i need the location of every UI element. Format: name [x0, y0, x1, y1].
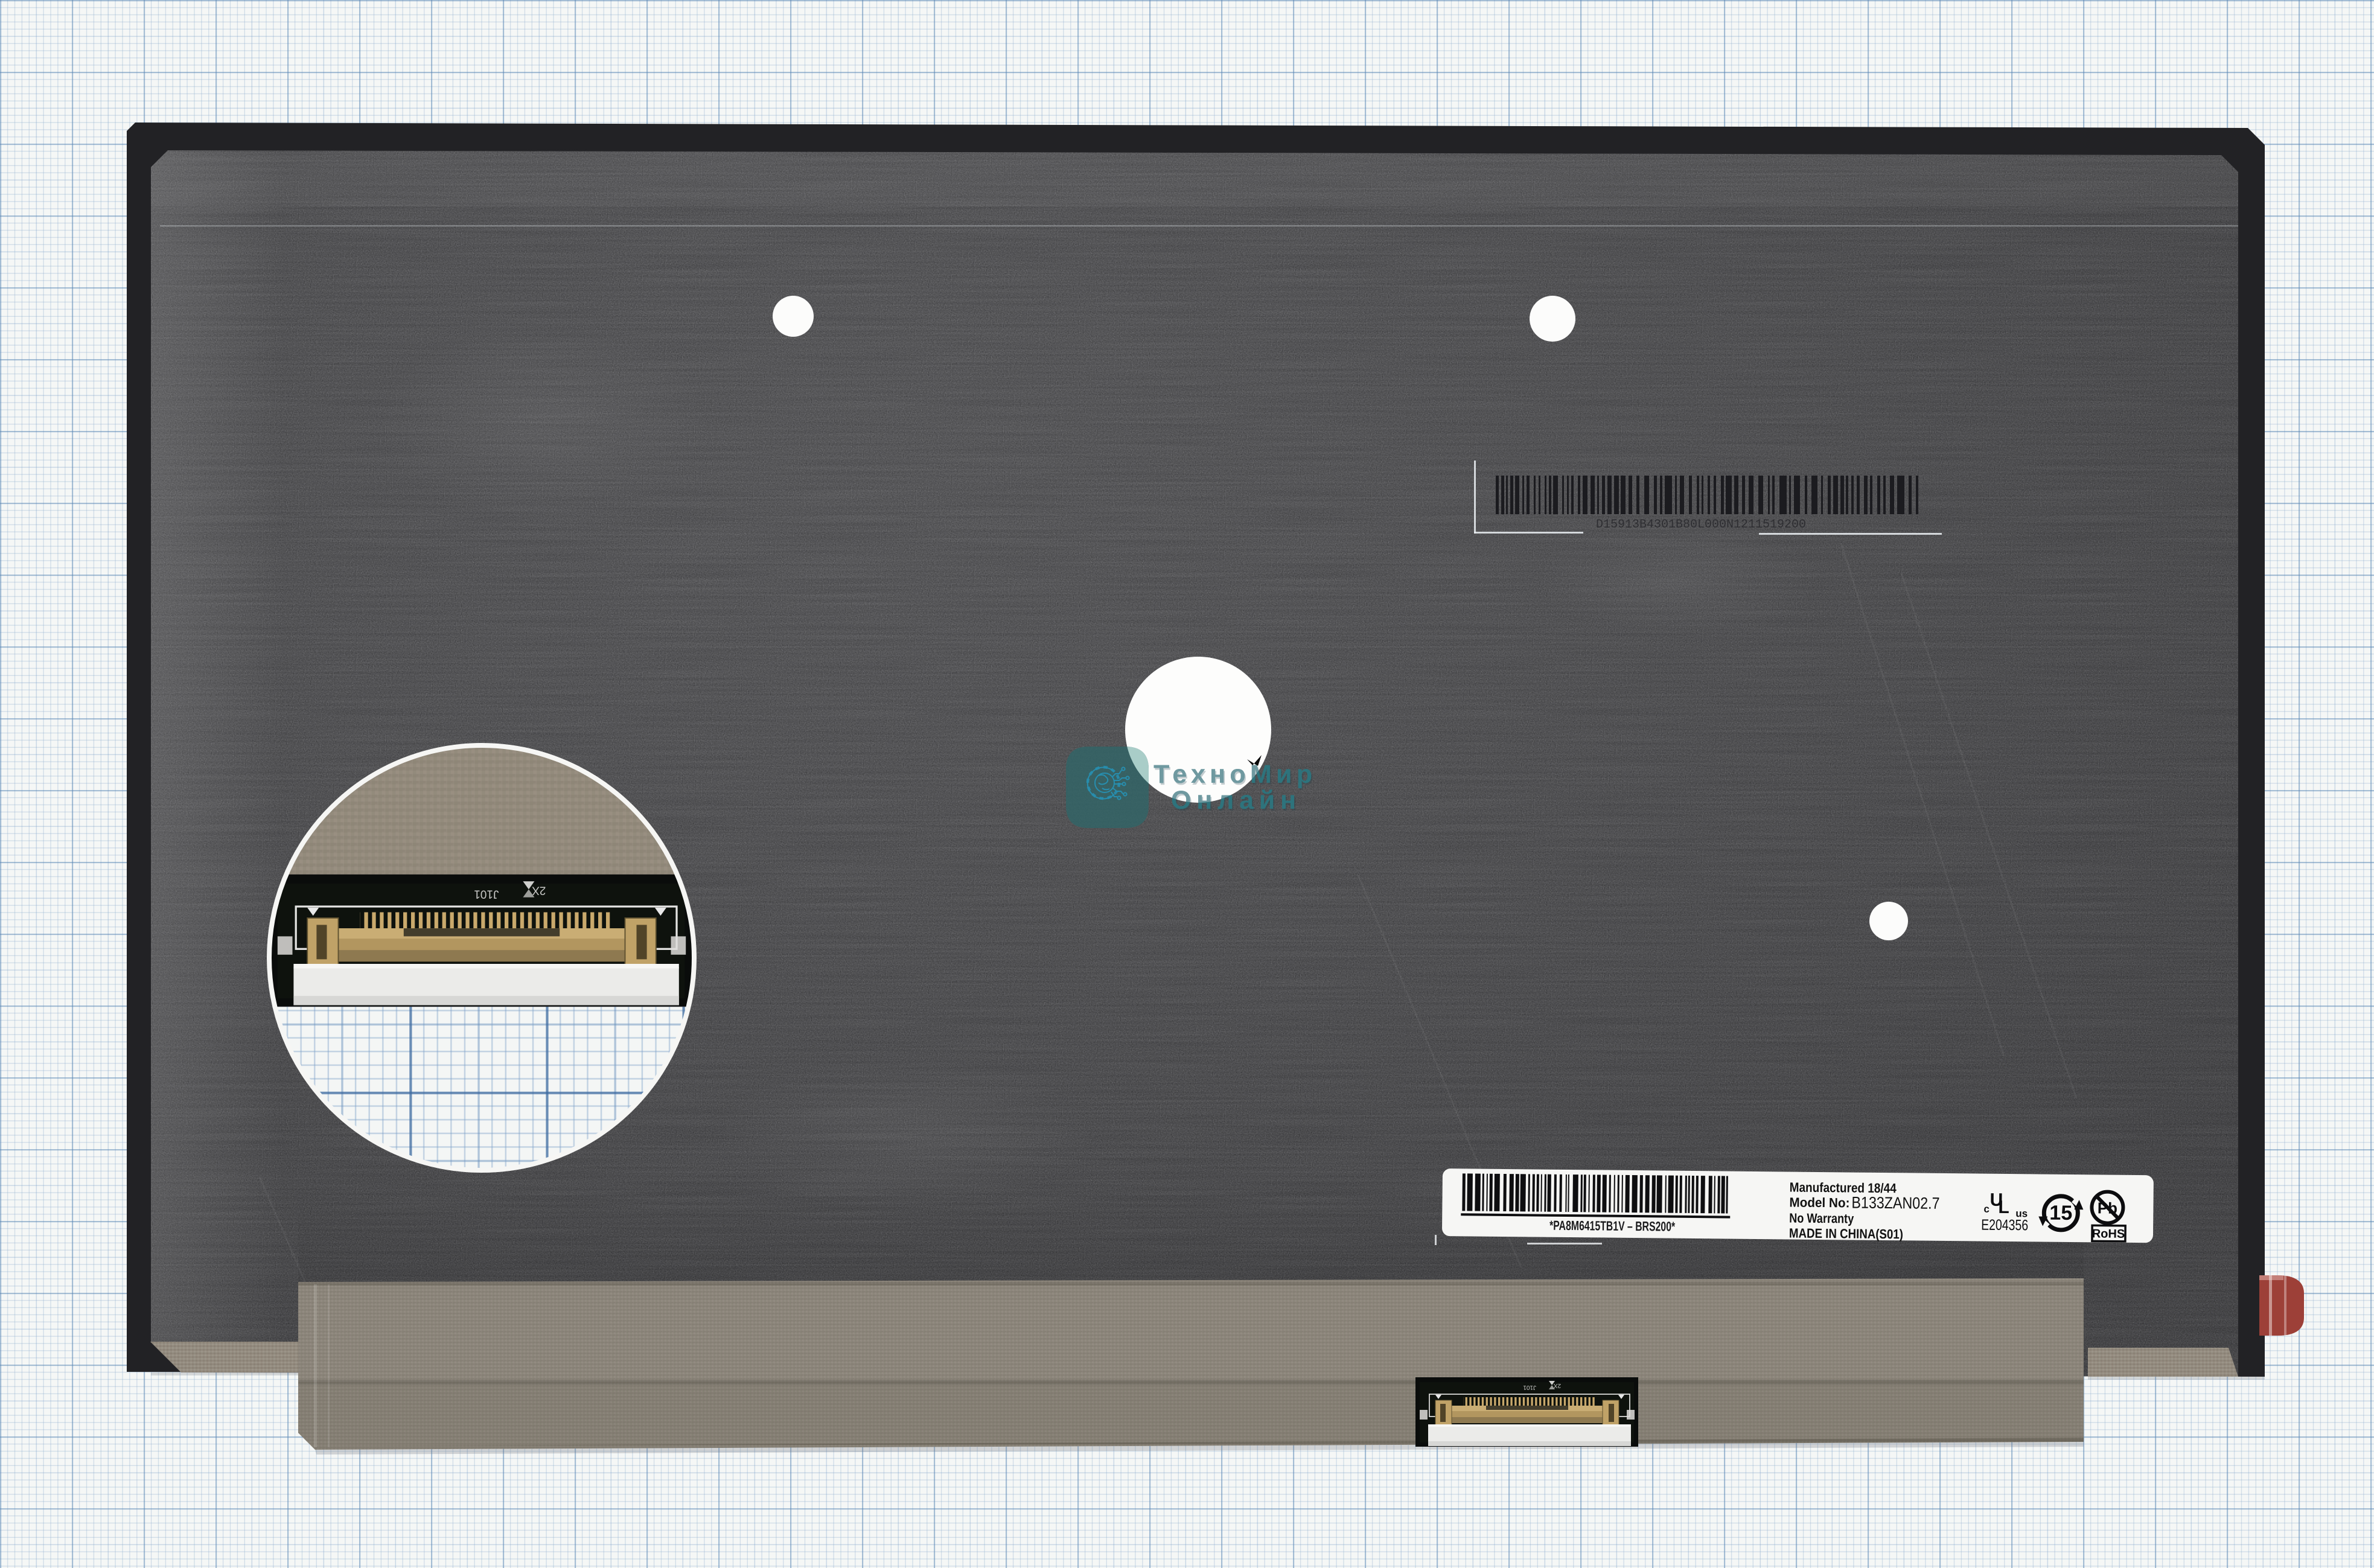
- svg-text:No Warranty: No Warranty: [1789, 1211, 1854, 1226]
- svg-text:c: c: [1983, 1203, 1990, 1215]
- svg-text:MADE IN CHINA(S01): MADE IN CHINA(S01): [1789, 1226, 1903, 1242]
- svg-text:*PA8M6415TB1V – BRS200*: *PA8M6415TB1V – BRS200*: [1549, 1218, 1676, 1234]
- svg-text:Model No:: Model No:: [1789, 1195, 1849, 1211]
- svg-text:E204356: E204356: [1981, 1217, 2028, 1234]
- svg-text:B133ZAN02.7: B133ZAN02.7: [1851, 1194, 1939, 1213]
- svg-text:D15913B4301B80L000N1211519200: D15913B4301B80L000N1211519200: [1596, 518, 1806, 532]
- svg-text:L: L: [1998, 1197, 2009, 1217]
- svg-text:15: 15: [2049, 1202, 2072, 1225]
- svg-text:RoHS: RoHS: [2092, 1227, 2125, 1241]
